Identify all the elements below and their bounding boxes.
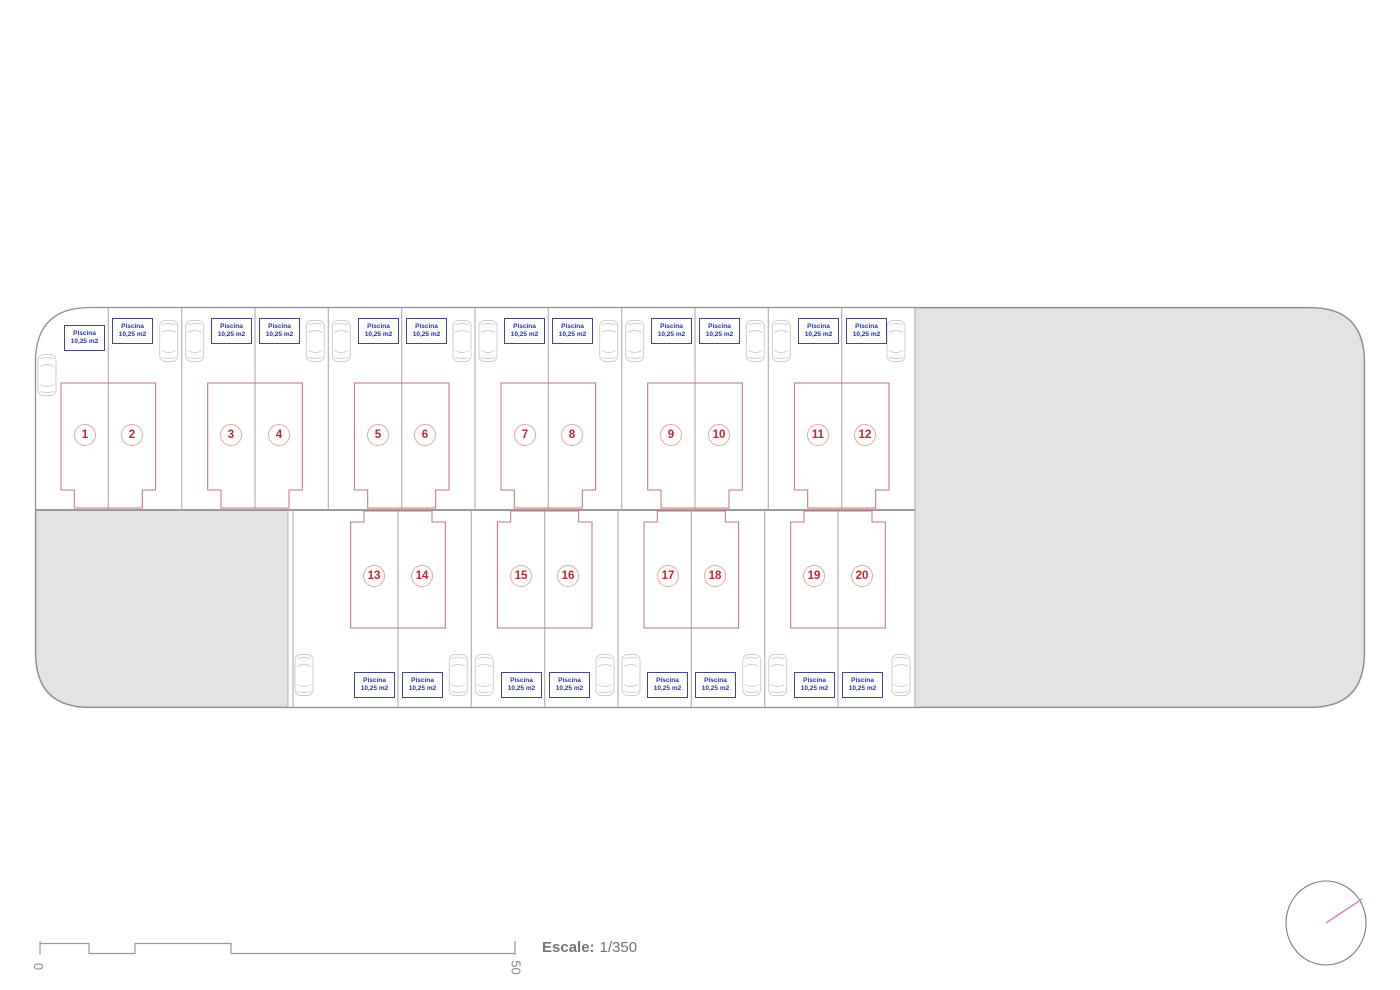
plot-14-pool-label: Piscina10,25 m2 bbox=[402, 672, 443, 698]
plot-8-number: 8 bbox=[561, 424, 583, 446]
plot-4-pool-label: Piscina10,25 m2 bbox=[259, 318, 300, 344]
plot-16-number: 16 bbox=[557, 565, 579, 587]
scale-caption: Escale:1/350 bbox=[542, 939, 637, 956]
compass-icon bbox=[1286, 881, 1366, 965]
plot-11-pool-label: Piscina10,25 m2 bbox=[798, 318, 839, 344]
car-icon bbox=[887, 321, 905, 362]
plot-12-pool-label: Piscina10,25 m2 bbox=[846, 318, 887, 344]
plot-2-pool-label: Piscina10,25 m2 bbox=[112, 318, 153, 344]
plot-3-pool-label: Piscina10,25 m2 bbox=[211, 318, 252, 344]
plot-1-number: 1 bbox=[74, 424, 96, 446]
plot-10-pool-label: Piscina10,25 m2 bbox=[699, 318, 740, 344]
car-icon bbox=[295, 655, 313, 696]
plot-7-pool-label: Piscina10,25 m2 bbox=[504, 318, 545, 344]
plot-4-number: 4 bbox=[268, 424, 290, 446]
plot-19-pool-label: Piscina10,25 m2 bbox=[794, 672, 835, 698]
car-icon bbox=[449, 655, 467, 696]
plot-8-pool-label: Piscina10,25 m2 bbox=[552, 318, 593, 344]
plot-18-number: 18 bbox=[704, 565, 726, 587]
common-area-right bbox=[915, 308, 1364, 707]
plot-2-number: 2 bbox=[121, 424, 143, 446]
plot-5-pool-label: Piscina10,25 m2 bbox=[358, 318, 399, 344]
common-area-bottom-left bbox=[36, 510, 288, 707]
scale-bar-line bbox=[40, 941, 515, 955]
plot-15-number: 15 bbox=[510, 565, 532, 587]
plot-20-number: 20 bbox=[851, 565, 873, 587]
plot-13-pool-label: Piscina10,25 m2 bbox=[354, 672, 395, 698]
scale-caption-title: Escale: bbox=[542, 939, 595, 956]
plot-6-pool-label: Piscina10,25 m2 bbox=[406, 318, 447, 344]
plot-9-number: 9 bbox=[660, 424, 682, 446]
car-icon bbox=[626, 321, 644, 362]
plot-13-number: 13 bbox=[363, 565, 385, 587]
car-icon bbox=[479, 321, 497, 362]
car-icon bbox=[743, 655, 761, 696]
plot-11-number: 11 bbox=[807, 424, 829, 446]
car-icon bbox=[306, 321, 324, 362]
plot-19-number: 19 bbox=[803, 565, 825, 587]
plot-14-number: 14 bbox=[411, 565, 433, 587]
plot-6-number: 6 bbox=[414, 424, 436, 446]
plot-3-number: 3 bbox=[220, 424, 242, 446]
car-icon bbox=[453, 321, 471, 362]
plot-17-number: 17 bbox=[657, 565, 679, 587]
site-plan-drawing bbox=[0, 0, 1400, 990]
car-icon bbox=[769, 655, 787, 696]
plot-1-pool-label: Piscina10,25 m2 bbox=[64, 325, 105, 351]
scale-start-label: 0 bbox=[31, 963, 46, 970]
plot-16-pool-label: Piscina10,25 m2 bbox=[549, 672, 590, 698]
car-icon bbox=[892, 655, 910, 696]
plot-10-number: 10 bbox=[708, 424, 730, 446]
plot-12-number: 12 bbox=[854, 424, 876, 446]
plot-18-pool-label: Piscina10,25 m2 bbox=[695, 672, 736, 698]
compass-needle bbox=[1326, 899, 1362, 923]
car-icon bbox=[332, 321, 350, 362]
car-icon bbox=[186, 321, 204, 362]
scale-caption-value: 1/350 bbox=[600, 939, 638, 956]
plot-5-number: 5 bbox=[367, 424, 389, 446]
scale-end-label: 50 bbox=[509, 960, 524, 974]
car-icon bbox=[596, 655, 614, 696]
car-icon bbox=[772, 321, 790, 362]
plot-20-pool-label: Piscina10,25 m2 bbox=[842, 672, 883, 698]
plot-7-number: 7 bbox=[514, 424, 536, 446]
plot-15-pool-label: Piscina10,25 m2 bbox=[501, 672, 542, 698]
car-icon bbox=[600, 321, 618, 362]
site-plan-page: 1 2 3 4 5 6 7 8 9 10 11 12 13 14 15 16 1… bbox=[0, 0, 1400, 990]
car-icon bbox=[622, 655, 640, 696]
plot-9-pool-label: Piscina10,25 m2 bbox=[651, 318, 692, 344]
car-icon bbox=[746, 321, 764, 362]
car-icon bbox=[160, 321, 178, 362]
car-icon bbox=[475, 655, 493, 696]
car-icon bbox=[38, 355, 56, 396]
plot-17-pool-label: Piscina10,25 m2 bbox=[647, 672, 688, 698]
